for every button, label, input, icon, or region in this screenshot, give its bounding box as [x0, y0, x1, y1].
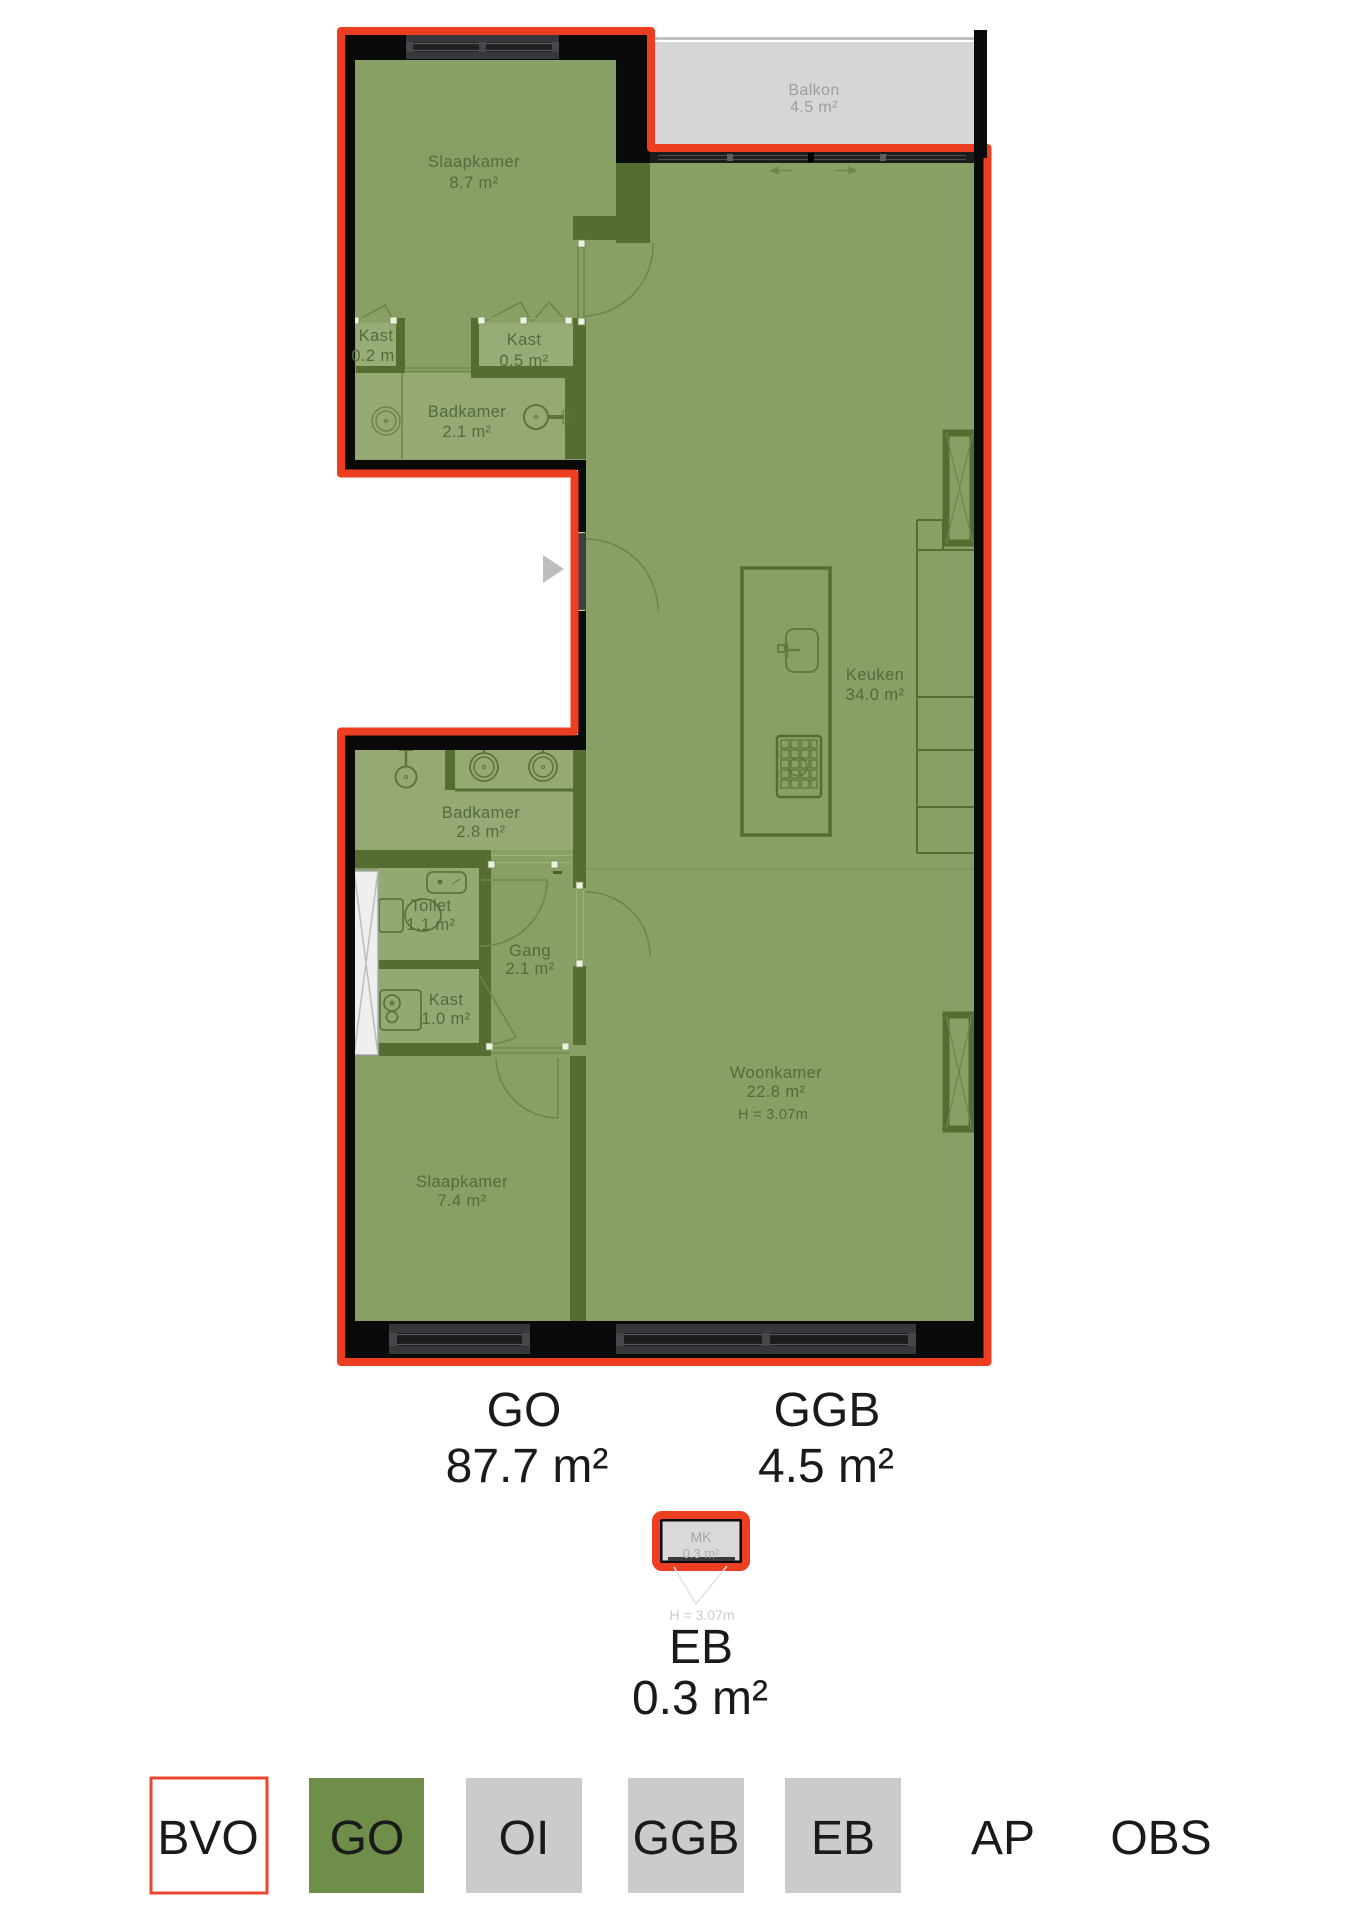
svg-text:BVO: BVO	[157, 1812, 258, 1865]
svg-text:GO: GO	[330, 1812, 405, 1865]
svg-text:H = 3.07m: H = 3.07m	[738, 1107, 808, 1123]
svg-text:Toilet: Toilet	[411, 897, 452, 915]
svg-text:0.2 m: 0.2 m	[351, 347, 394, 365]
svg-text:GGB: GGB	[774, 1384, 881, 1437]
svg-text:OI: OI	[499, 1812, 550, 1865]
svg-text:EB: EB	[669, 1621, 733, 1674]
svg-text:34.0 m²: 34.0 m²	[846, 686, 905, 704]
svg-text:2.8 m²: 2.8 m²	[456, 823, 505, 841]
svg-text:2.1 m²: 2.1 m²	[442, 423, 491, 441]
svg-text:Gang: Gang	[509, 942, 551, 960]
svg-text:87.7 m²: 87.7 m²	[446, 1440, 609, 1493]
svg-text:GO: GO	[487, 1384, 562, 1437]
svg-text:Keuken: Keuken	[846, 666, 904, 684]
svg-text:Kast: Kast	[507, 331, 542, 349]
svg-text:1.1 m²: 1.1 m²	[406, 916, 455, 934]
svg-text:0.3 m²: 0.3 m²	[632, 1672, 768, 1725]
svg-text:2.1 m²: 2.1 m²	[505, 960, 554, 978]
svg-text:4.5 m²: 4.5 m²	[758, 1440, 894, 1493]
svg-text:MK: MK	[691, 1529, 713, 1545]
svg-text:Kast: Kast	[359, 327, 394, 345]
svg-text:8.7 m²: 8.7 m²	[449, 174, 498, 192]
svg-text:4.5 m²: 4.5 m²	[790, 99, 838, 116]
svg-text:Kast: Kast	[429, 991, 464, 1009]
svg-text:Slaapkamer: Slaapkamer	[428, 153, 520, 171]
svg-text:7.4 m²: 7.4 m²	[437, 1192, 486, 1210]
svg-text:EB: EB	[811, 1812, 875, 1865]
svg-text:1.0 m²: 1.0 m²	[421, 1010, 470, 1028]
svg-text:OBS: OBS	[1110, 1812, 1211, 1865]
svg-text:0.5 m²: 0.5 m²	[499, 352, 548, 370]
svg-text:Slaapkamer: Slaapkamer	[416, 1173, 508, 1191]
svg-text:Badkamer: Badkamer	[442, 804, 521, 822]
svg-text:Badkamer: Badkamer	[428, 403, 507, 421]
svg-text:22.8 m²: 22.8 m²	[747, 1083, 806, 1101]
svg-text:0.3 m²: 0.3 m²	[683, 1546, 721, 1561]
svg-text:Balkon: Balkon	[788, 82, 839, 99]
svg-text:GGB: GGB	[633, 1812, 740, 1865]
svg-text:AP: AP	[971, 1812, 1035, 1865]
svg-text:Woonkamer: Woonkamer	[730, 1064, 822, 1082]
